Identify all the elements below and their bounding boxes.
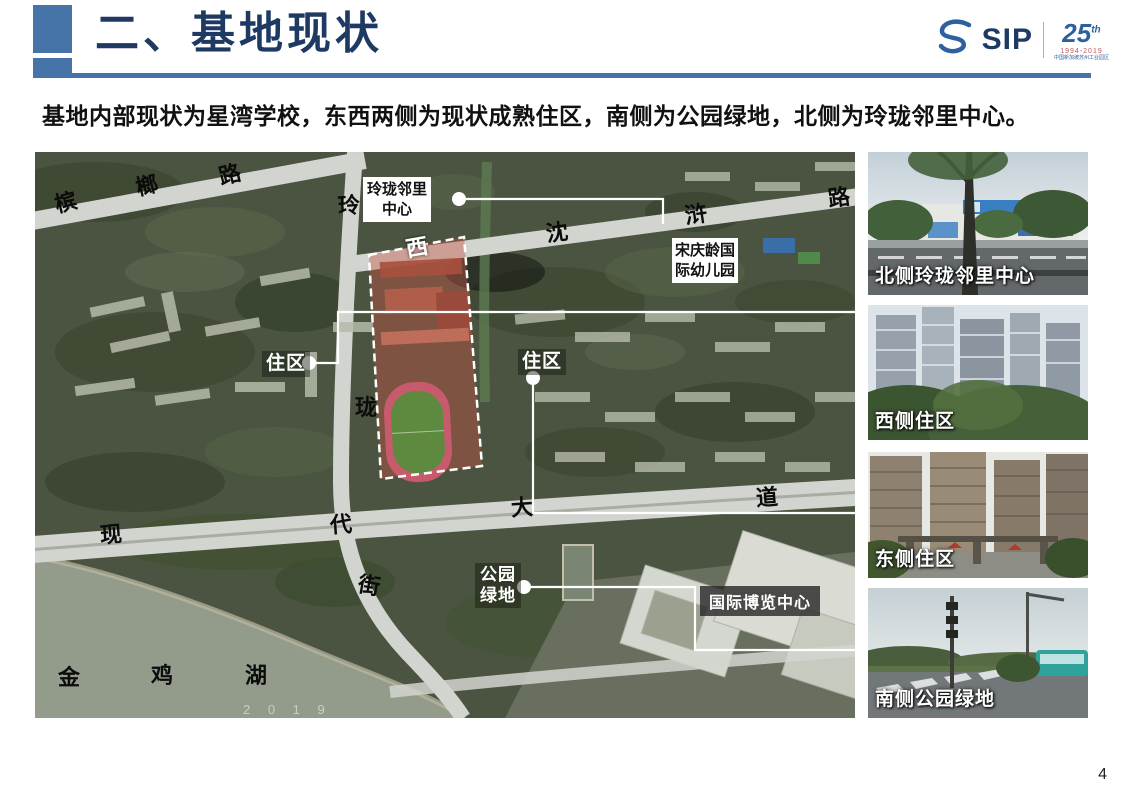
callout-linglong-center: 玲珑邻里中心 (363, 177, 431, 222)
school-buildings (380, 258, 473, 345)
road-label: 路 (827, 186, 852, 211)
road-label: 浒 (684, 203, 709, 228)
callout-residential-east: 住区 (518, 349, 566, 375)
callout-park-green: 公园绿地 (475, 563, 521, 608)
callout-residential-west: 住区 (262, 351, 310, 377)
sip-logo: SIP 25th 1994-2019 中国新加坡苏州工业园区 (936, 16, 1109, 64)
photo-caption: 南侧公园绿地 (875, 684, 995, 711)
road-label: 现 (99, 523, 122, 546)
sip-anniversary-mark: 25th 1994-2019 中国新加坡苏州工业园区 (1054, 20, 1109, 61)
photo-east-residential: 东侧住区 (868, 452, 1088, 578)
road-label: 大 (510, 496, 533, 519)
satellite-map-art (35, 152, 855, 718)
park-pond (563, 545, 593, 600)
anniversary-years: 1994-2019 (1060, 48, 1102, 55)
road-label: 西 (404, 235, 430, 260)
tennis-courts (763, 238, 795, 253)
anniversary-micro-text: 中国新加坡苏州工业园区 (1054, 56, 1109, 61)
intro-text: 基地内部现状为星湾学校，东西两侧为现状成熟住区，南侧为公园绿地，北侧为玲珑邻里中… (42, 97, 1102, 131)
lake-label: 金 (58, 667, 80, 689)
football-field (382, 380, 453, 483)
title-underline (33, 73, 1091, 78)
photo-caption: 北侧玲珑邻里中心 (875, 261, 1035, 288)
callout-expo-center: 国际博览中心 (700, 586, 820, 616)
lake-label: 湖 (245, 665, 267, 687)
page-number: 4 (1098, 766, 1107, 784)
logo-divider (1043, 22, 1044, 58)
callout-songqingling-kindergarten: 宋庆龄国际幼儿园 (672, 238, 738, 283)
road-label: 街 (356, 573, 382, 598)
photo-north-linglong-center: 北侧玲珑邻里中心 (868, 152, 1088, 295)
sports-field-small (798, 252, 820, 264)
sip-logo-text: SIP (982, 23, 1033, 57)
road-label: 珑 (355, 397, 377, 419)
header-accent-square (33, 5, 72, 53)
photo-caption: 西侧住区 (875, 406, 955, 433)
road-label: 沈 (545, 221, 570, 246)
road-label: 代 (329, 513, 352, 536)
map-watermark: 2 0 1 9 (243, 702, 332, 717)
photo-west-residential: 西侧住区 (868, 305, 1088, 440)
lake-label: 鸡 (151, 665, 173, 687)
anniversary-number: 25th (1062, 20, 1100, 46)
photo-caption: 东侧住区 (875, 544, 955, 571)
site-boundary-group (369, 237, 482, 484)
header-accent-bar (33, 58, 72, 74)
sip-swirl-icon (936, 17, 978, 64)
page-title: 二、基地现状 (95, 8, 383, 61)
photo-south-park: 南侧公园绿地 (868, 588, 1088, 718)
road-label: 道 (755, 486, 778, 509)
road-label: 玲 (337, 194, 360, 217)
satellite-map: 槟 榔 路 玲 西 沈 浒 路 珑 现 代 大 道 街 金 鸡 湖 玲珑邻里中心… (35, 152, 855, 718)
